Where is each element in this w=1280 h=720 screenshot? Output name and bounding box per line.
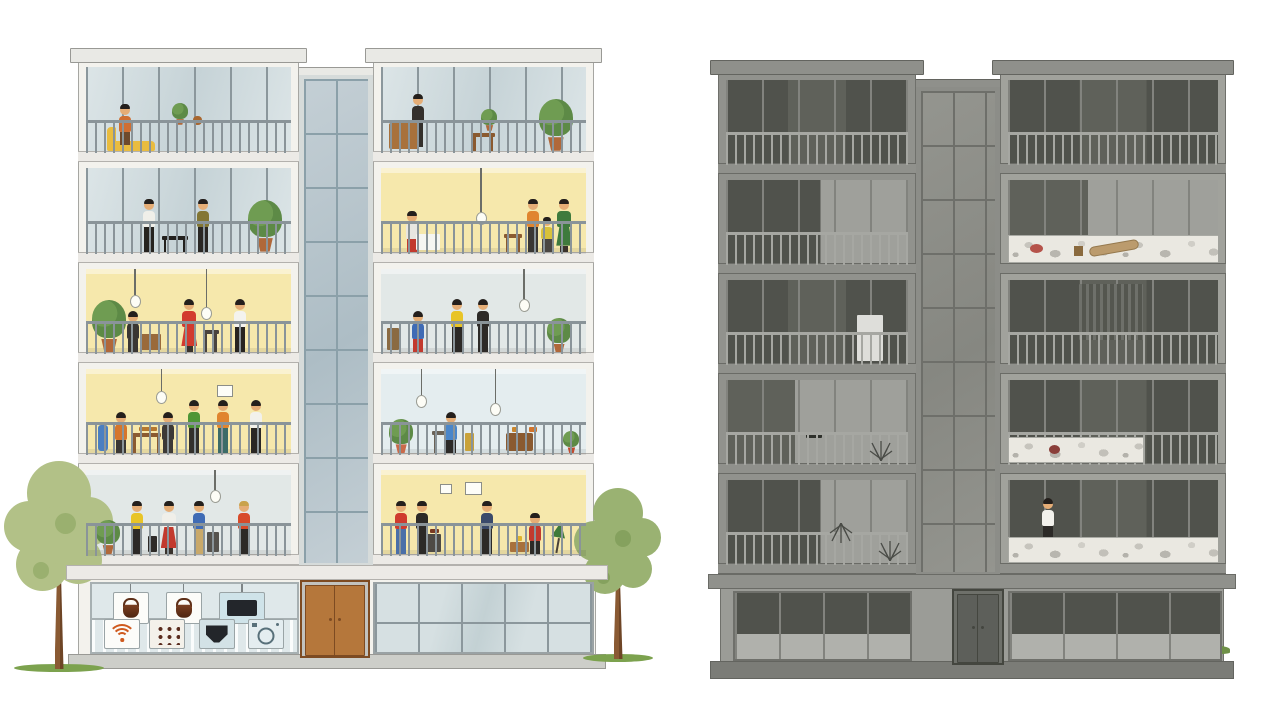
lamp-cord	[421, 369, 423, 395]
balcony-railing	[726, 232, 908, 265]
weathered-balcony-panel	[1008, 537, 1218, 563]
floor	[79, 363, 298, 464]
glass-elevator-core	[297, 75, 375, 565]
floor	[1001, 474, 1225, 574]
apartment-room	[86, 470, 291, 556]
balcony-railing	[726, 132, 908, 165]
washer-knob	[276, 623, 279, 626]
balcony-railing	[381, 321, 586, 354]
door-handle	[981, 626, 984, 629]
wall-frame	[465, 482, 482, 495]
person-hair	[239, 501, 249, 507]
floor	[374, 61, 593, 162]
room-ceiling	[381, 470, 586, 475]
person-hair	[235, 299, 245, 305]
plant-foliage	[172, 103, 188, 119]
room-ceiling	[381, 369, 586, 374]
person-hair	[218, 400, 228, 406]
lamp-cord	[206, 269, 208, 307]
person-hair	[452, 299, 462, 305]
balcony-railing	[86, 221, 291, 254]
pendant-lamp	[209, 470, 219, 502]
wing-left	[718, 74, 916, 574]
appliance-shop-window	[90, 582, 299, 654]
balcony-railing	[381, 523, 586, 556]
person-hair	[184, 299, 194, 305]
pendant-lamp	[129, 269, 139, 307]
balcony-railing	[726, 332, 908, 365]
balcony-railing	[381, 120, 586, 153]
person-hair	[528, 199, 538, 205]
stove-sign	[149, 619, 185, 649]
lamp-cord	[214, 470, 216, 490]
floor	[79, 61, 298, 162]
sign-wire	[130, 584, 132, 592]
floor	[1001, 374, 1225, 474]
person-hair	[446, 412, 456, 418]
lamp-bulb	[519, 299, 530, 312]
lamp-bulb	[490, 403, 501, 416]
person-hair	[163, 412, 173, 418]
apartment-room	[381, 168, 586, 254]
door-leaf	[977, 594, 999, 663]
room-ceiling	[86, 269, 291, 274]
floor	[1001, 174, 1225, 274]
balcony-bay	[726, 480, 908, 565]
lively-building	[70, 48, 602, 667]
range-hood	[206, 626, 228, 643]
wifi-dot	[121, 638, 125, 642]
floor	[374, 363, 593, 464]
wall-frame	[440, 484, 452, 494]
lamp-bulb	[156, 391, 167, 404]
core-glazing	[304, 79, 368, 563]
room-ceiling	[381, 269, 586, 274]
stain	[1049, 445, 1060, 454]
person-hair	[132, 501, 142, 507]
person-hair	[417, 501, 427, 507]
storefront-window	[1008, 591, 1222, 661]
washer-sign	[248, 619, 284, 649]
apartment-room	[86, 269, 291, 355]
balcony-bay	[726, 80, 908, 165]
pendant-lamp	[518, 269, 528, 311]
balcony-railing	[86, 422, 291, 455]
sign-wire	[183, 584, 185, 592]
concrete-core	[914, 87, 1002, 574]
lamp-cord	[134, 269, 136, 295]
person-hair	[198, 199, 208, 205]
balcony-railing	[1008, 332, 1218, 365]
lamp-bulb	[416, 395, 427, 408]
lamp-cord	[161, 369, 163, 391]
person-hair	[559, 199, 569, 205]
apartment-room	[86, 369, 291, 455]
pendant-lamp	[201, 269, 211, 319]
weathered-balcony-panel	[1008, 437, 1144, 463]
balcony-bay	[726, 380, 908, 465]
entrance-door	[952, 589, 1004, 665]
lamp-cord	[523, 269, 525, 299]
lamp-cord	[480, 168, 482, 212]
core-glazing	[921, 91, 995, 572]
storefront-window	[373, 582, 594, 654]
roof-cornice	[365, 48, 602, 63]
tree-foliage-shade	[55, 513, 76, 534]
tv-screen	[227, 600, 257, 616]
wing-right	[373, 61, 594, 565]
balcony-bay	[1008, 180, 1218, 265]
person-hair	[407, 211, 417, 217]
person-hair	[396, 501, 406, 507]
person-hair	[413, 311, 423, 317]
floor	[79, 162, 298, 263]
stain	[1030, 244, 1043, 253]
balcony-bay	[1008, 80, 1218, 165]
balcony-bay	[1008, 280, 1218, 365]
balcony-bay	[1008, 480, 1218, 565]
kettle-body	[176, 605, 192, 618]
roof-cornice	[710, 60, 924, 75]
skateboard-debris	[1088, 239, 1139, 258]
illustration-canvas	[0, 0, 1280, 720]
room-ceiling	[86, 470, 291, 475]
ground-slab	[66, 565, 608, 580]
person-hair	[144, 199, 154, 205]
lamp-bulb	[201, 307, 212, 320]
roof-cornice	[70, 48, 307, 63]
person-hair	[413, 94, 423, 100]
debris-block	[1074, 246, 1083, 256]
lamp-bulb	[210, 490, 221, 503]
floor-slab	[1000, 563, 1226, 574]
balcony-bay	[1008, 380, 1218, 465]
washer-door	[257, 628, 274, 645]
roof-cornice	[992, 60, 1234, 75]
person-hair	[1043, 498, 1053, 504]
balcony-railing	[381, 221, 586, 254]
sign-wire	[241, 584, 243, 592]
floor	[374, 263, 593, 364]
door-handle	[972, 626, 975, 629]
person-hair	[164, 501, 174, 507]
storefront-window	[733, 591, 912, 661]
dead-plant	[828, 523, 854, 549]
apartment-room	[381, 470, 586, 556]
person-hair	[116, 412, 126, 418]
balcony-bay	[86, 67, 291, 153]
person-hair	[251, 400, 261, 406]
floor	[1001, 74, 1225, 174]
person-hair	[120, 104, 130, 110]
balcony-bay	[726, 180, 908, 265]
person-torso	[1042, 510, 1054, 526]
kettle-body	[123, 605, 139, 618]
weathered-balcony-panel	[1008, 235, 1218, 263]
person-hair	[530, 513, 540, 519]
floor-slab	[1000, 263, 1226, 274]
room-ceiling	[86, 369, 291, 374]
balcony-railing	[86, 120, 291, 153]
hood-sign	[199, 619, 235, 649]
dead-plant	[877, 535, 903, 561]
tree-foliage-shade	[33, 562, 50, 579]
pendant-lamp	[490, 369, 500, 415]
floor	[374, 464, 593, 565]
burner-dots	[154, 623, 180, 645]
person-hair	[478, 299, 488, 305]
wall-frame	[217, 385, 233, 397]
floor	[719, 374, 915, 474]
floor	[719, 274, 915, 374]
floor	[719, 74, 915, 174]
floor	[374, 162, 593, 263]
person-hair	[128, 311, 138, 317]
balcony-railing	[381, 422, 586, 455]
balcony-bay	[726, 280, 908, 365]
apartment-room	[381, 369, 586, 455]
balcony-railing	[86, 523, 291, 556]
person-hair	[194, 501, 204, 507]
lamp-bulb	[130, 295, 141, 308]
floor	[719, 474, 915, 574]
abandoned-building	[712, 60, 1230, 677]
person-hair	[482, 501, 492, 507]
washer-panel	[252, 623, 257, 627]
dead-plant	[868, 435, 894, 461]
door-handle	[338, 618, 341, 621]
person-hair	[189, 400, 199, 406]
wifi-sign	[104, 619, 140, 649]
ground-slab	[708, 574, 1236, 589]
entrance-door	[300, 580, 370, 658]
door-leaf	[957, 594, 979, 663]
lamp-cord	[495, 369, 497, 403]
pendant-lamp	[156, 369, 166, 403]
balcony-railing	[86, 321, 291, 354]
balcony-bay	[381, 67, 586, 153]
pendant-lamp	[416, 369, 426, 407]
floor	[719, 174, 915, 274]
floor	[79, 263, 298, 364]
apartment-room	[381, 269, 586, 355]
pendant-lamp	[475, 168, 485, 224]
wing-right	[1000, 74, 1226, 574]
balcony-bay	[86, 168, 291, 254]
balcony-railing	[1008, 132, 1218, 165]
floor	[1001, 274, 1225, 374]
door-handle	[329, 618, 332, 621]
